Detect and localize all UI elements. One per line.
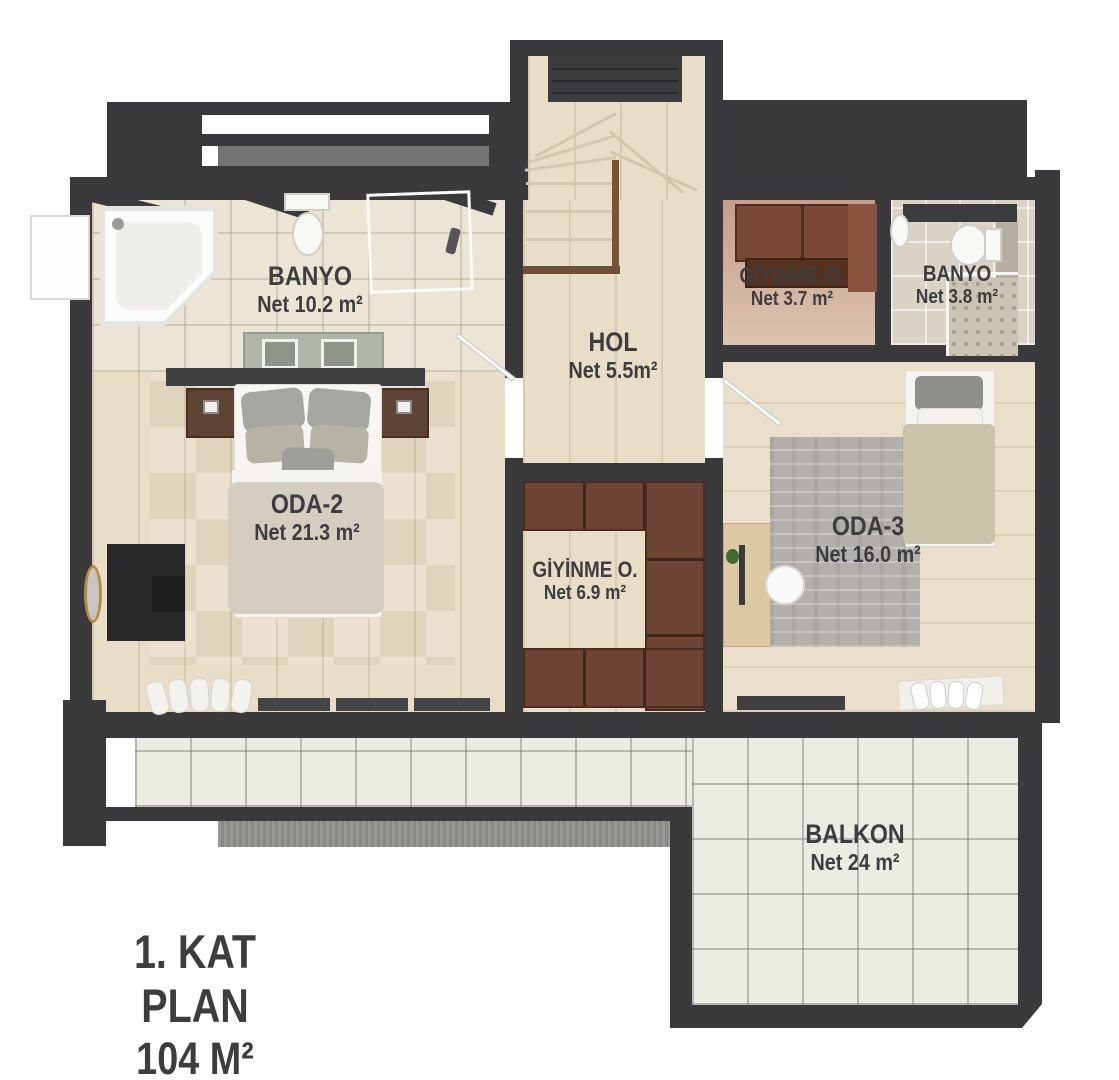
bed-oda3-pillow-gray <box>915 376 983 410</box>
hol-area: Net 5.5m² <box>536 358 691 383</box>
oda2-name: ODA-2 <box>221 490 393 520</box>
balkon-floor-left <box>135 738 692 807</box>
window-slat-1 <box>202 115 489 134</box>
stair-right-wall <box>705 40 723 200</box>
slipper-oda2-4 <box>210 677 231 712</box>
toilet-tank-sag <box>984 228 1002 262</box>
desk-oda3 <box>723 523 771 647</box>
window-slat-2 <box>202 146 489 166</box>
floor-mat-oda3 <box>737 696 845 710</box>
monitor-oda3 <box>739 545 745 605</box>
giyinme-orta-area: Net 6.9 m² <box>516 582 654 604</box>
wall-mirror-oda2 <box>84 565 102 623</box>
nightstand-left-lamp <box>203 400 219 414</box>
stair-landing <box>548 56 682 102</box>
plan-title: 1. KAT PLAN 104 M² <box>90 925 300 1080</box>
label-balkon: BALKON Net 24 m² <box>769 820 941 875</box>
oda3-area: Net 16.0 m² <box>782 542 954 567</box>
giyinme-orta-top-wall <box>505 463 723 481</box>
bottom-interior-wall <box>70 712 1035 738</box>
toilet-tank-sol <box>284 193 330 211</box>
slipper-oda3-2 <box>929 680 947 709</box>
stair-rail-vertical <box>612 160 619 272</box>
top-wall-right <box>723 177 1035 200</box>
balkon-right-wall <box>1018 723 1042 1028</box>
slipper-oda3-3 <box>947 681 964 710</box>
giyinme-ust-name: GİYİNME O. <box>723 264 861 288</box>
stair-tread-1 <box>526 182 616 185</box>
exterior-ledge <box>30 215 90 300</box>
bathtub-basin <box>116 222 202 310</box>
label-giyinme-ust: GİYİNME O. Net 3.7 m² <box>723 264 861 310</box>
hol-name: HOL <box>536 328 691 358</box>
label-oda3: ODA-3 Net 16.0 m² <box>782 512 954 567</box>
oda3-name: ODA-3 <box>782 512 954 542</box>
banyo-sag-shelf <box>903 204 1017 222</box>
top-wall-right-block <box>723 100 1027 177</box>
plant-oda3 <box>726 549 739 564</box>
banyo-sag-name: BANYO <box>888 262 1026 286</box>
banyo-sol-area: Net 10.2 m² <box>220 292 401 317</box>
hol-right-wall <box>705 200 723 378</box>
hol-right-wall-lower <box>705 458 723 712</box>
banyo-sol-name: BANYO <box>220 262 401 292</box>
balkon-name: BALKON <box>769 820 941 850</box>
label-giyinme-orta: GİYİNME O. Net 6.9 m² <box>516 558 654 604</box>
toilet-bowl-sag <box>950 224 988 266</box>
vanity-sink-2 <box>321 339 357 369</box>
plan-title-line2: 104 M² <box>90 1033 300 1080</box>
hol-left-wall <box>505 200 523 378</box>
giyinme-ust-area: Net 3.7 m² <box>723 288 861 310</box>
giyinme-orta-name: GİYİNME O. <box>516 558 654 582</box>
floor-plan: BANYO Net 10.2 m² HOL Net 5.5m² GİYİNME … <box>0 0 1119 1080</box>
floor-mat-oda2-1 <box>258 698 330 711</box>
wardrobe-orta-bottom <box>523 648 705 708</box>
balkon-concrete-edge <box>218 821 692 847</box>
plan-title-line1: 1. KAT PLAN <box>90 925 300 1033</box>
balkon-bottom-wall <box>670 1005 1042 1028</box>
chair-oda2 <box>152 576 185 612</box>
oda2-area: Net 21.3 m² <box>221 520 393 545</box>
slipper-oda2-3 <box>189 678 210 713</box>
label-hol: HOL Net 5.5m² <box>536 328 691 383</box>
chair-oda3 <box>765 565 805 605</box>
floor-mat-oda2-3 <box>414 698 490 711</box>
stair-tread-2 <box>526 210 616 213</box>
stair-landing-line-3 <box>552 92 678 94</box>
vanity-sink-1 <box>262 339 298 369</box>
balkon-area: Net 24 m² <box>769 850 941 875</box>
stair-top-wall <box>510 40 723 56</box>
label-oda2: ODA-2 Net 21.3 m² <box>221 490 393 545</box>
right-outer-wall <box>1035 170 1060 723</box>
stair-rail-horizontal <box>523 266 620 274</box>
floor-mat-oda2-2 <box>336 698 408 711</box>
balkon-inner-left-wall <box>670 807 692 1005</box>
bathtub-faucet <box>112 218 124 230</box>
stair-landing-line-2 <box>552 80 678 82</box>
label-banyo-sag: BANYO Net 3.8 m² <box>888 262 1026 308</box>
toilet-bowl-sol <box>292 212 324 256</box>
nightstand-right-lamp <box>396 400 412 414</box>
stair-left-wall <box>510 40 528 200</box>
balkon-sill-wall <box>103 807 692 821</box>
stair-tread-3 <box>526 238 616 241</box>
sink-sag <box>890 214 910 248</box>
banyo-sag-area: Net 3.8 m² <box>888 286 1026 308</box>
stair-landing-line-1 <box>552 68 678 70</box>
label-banyo-sol: BANYO Net 10.2 m² <box>220 262 401 317</box>
